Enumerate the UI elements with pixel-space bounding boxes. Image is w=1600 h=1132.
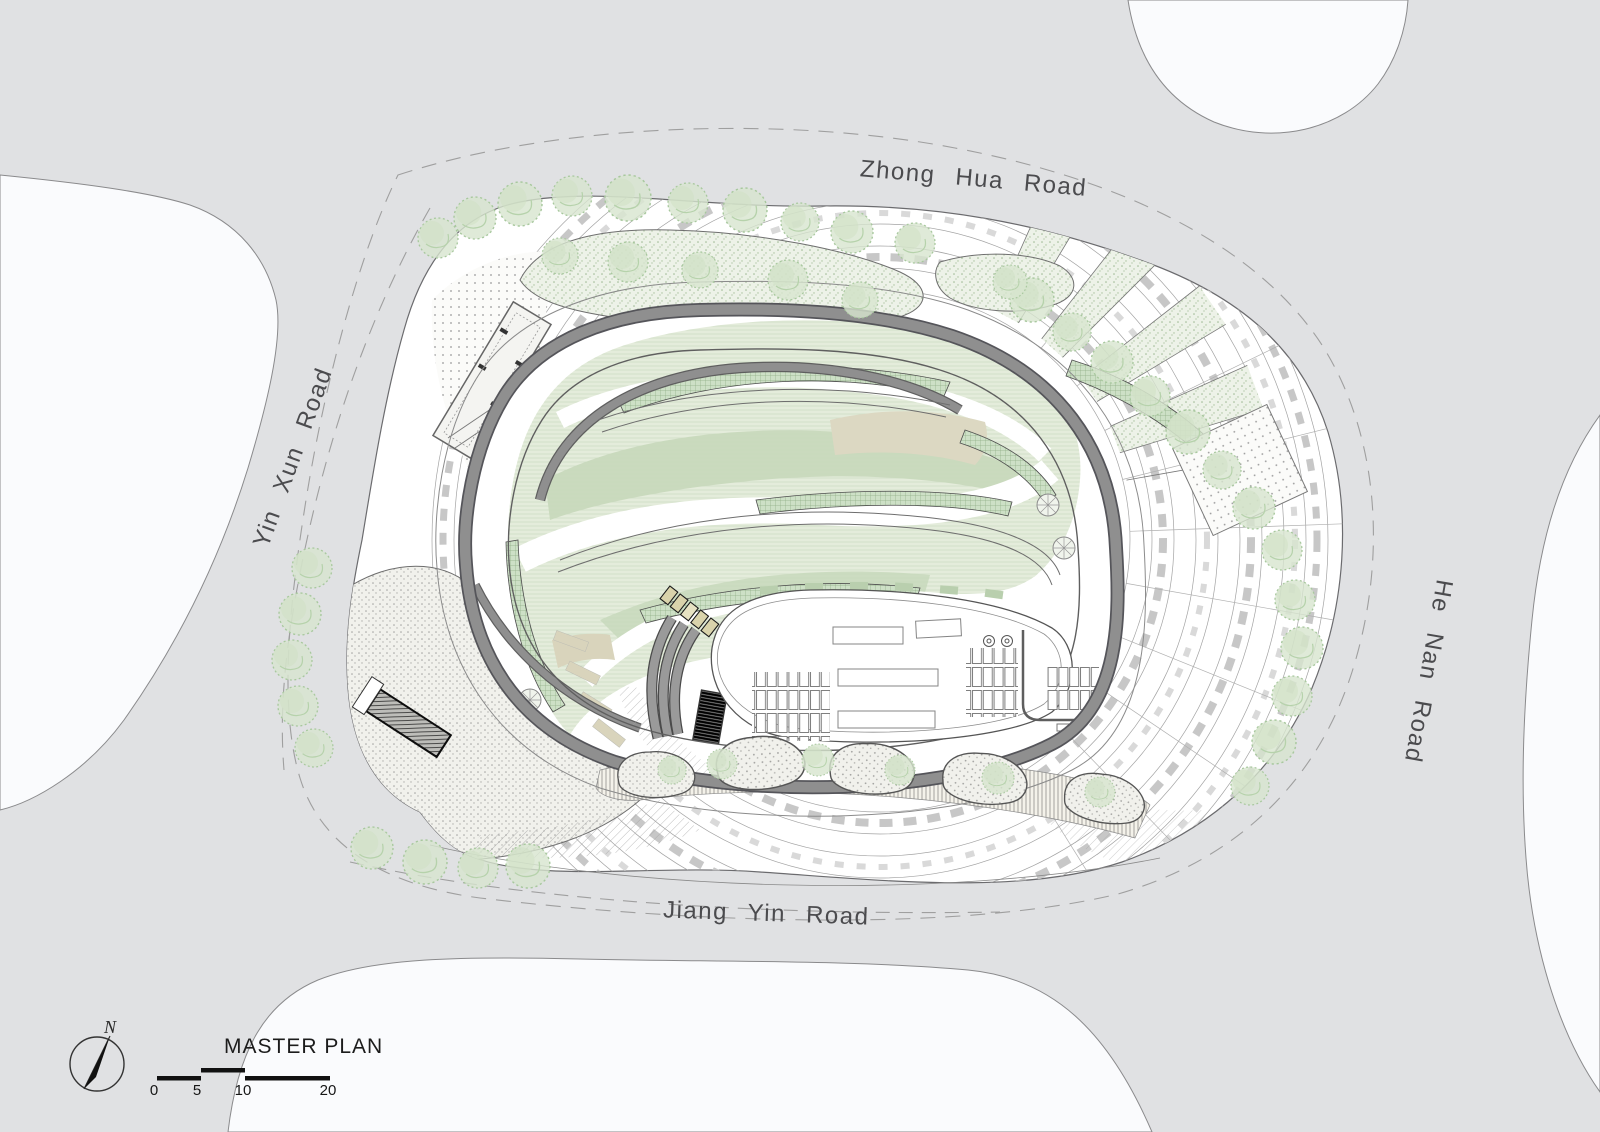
scale-tick-20: 20 <box>320 1082 337 1099</box>
scale-tick-5: 5 <box>193 1082 201 1099</box>
sink <box>984 636 995 647</box>
page-title: MASTER PLAN <box>224 1035 383 1058</box>
scale-tick-10: 10 <box>235 1082 252 1099</box>
table <box>838 711 935 728</box>
table <box>833 627 903 644</box>
table <box>916 619 962 638</box>
master-plan-drawing: Zhong Hua Road Yin Xun Road He Nan Road … <box>0 0 1600 1132</box>
scale-tick-0: 0 <box>150 1082 158 1099</box>
master-plan-canvas: Zhong Hua Road Yin Xun Road He Nan Road … <box>0 0 1600 1132</box>
north-label: N <box>103 1017 117 1037</box>
tree-icon <box>1053 537 1075 559</box>
desk-rows <box>752 672 830 741</box>
sink <box>1002 636 1013 647</box>
desk-rows <box>966 648 1018 717</box>
tree-icon <box>1037 494 1059 516</box>
table <box>838 669 938 686</box>
